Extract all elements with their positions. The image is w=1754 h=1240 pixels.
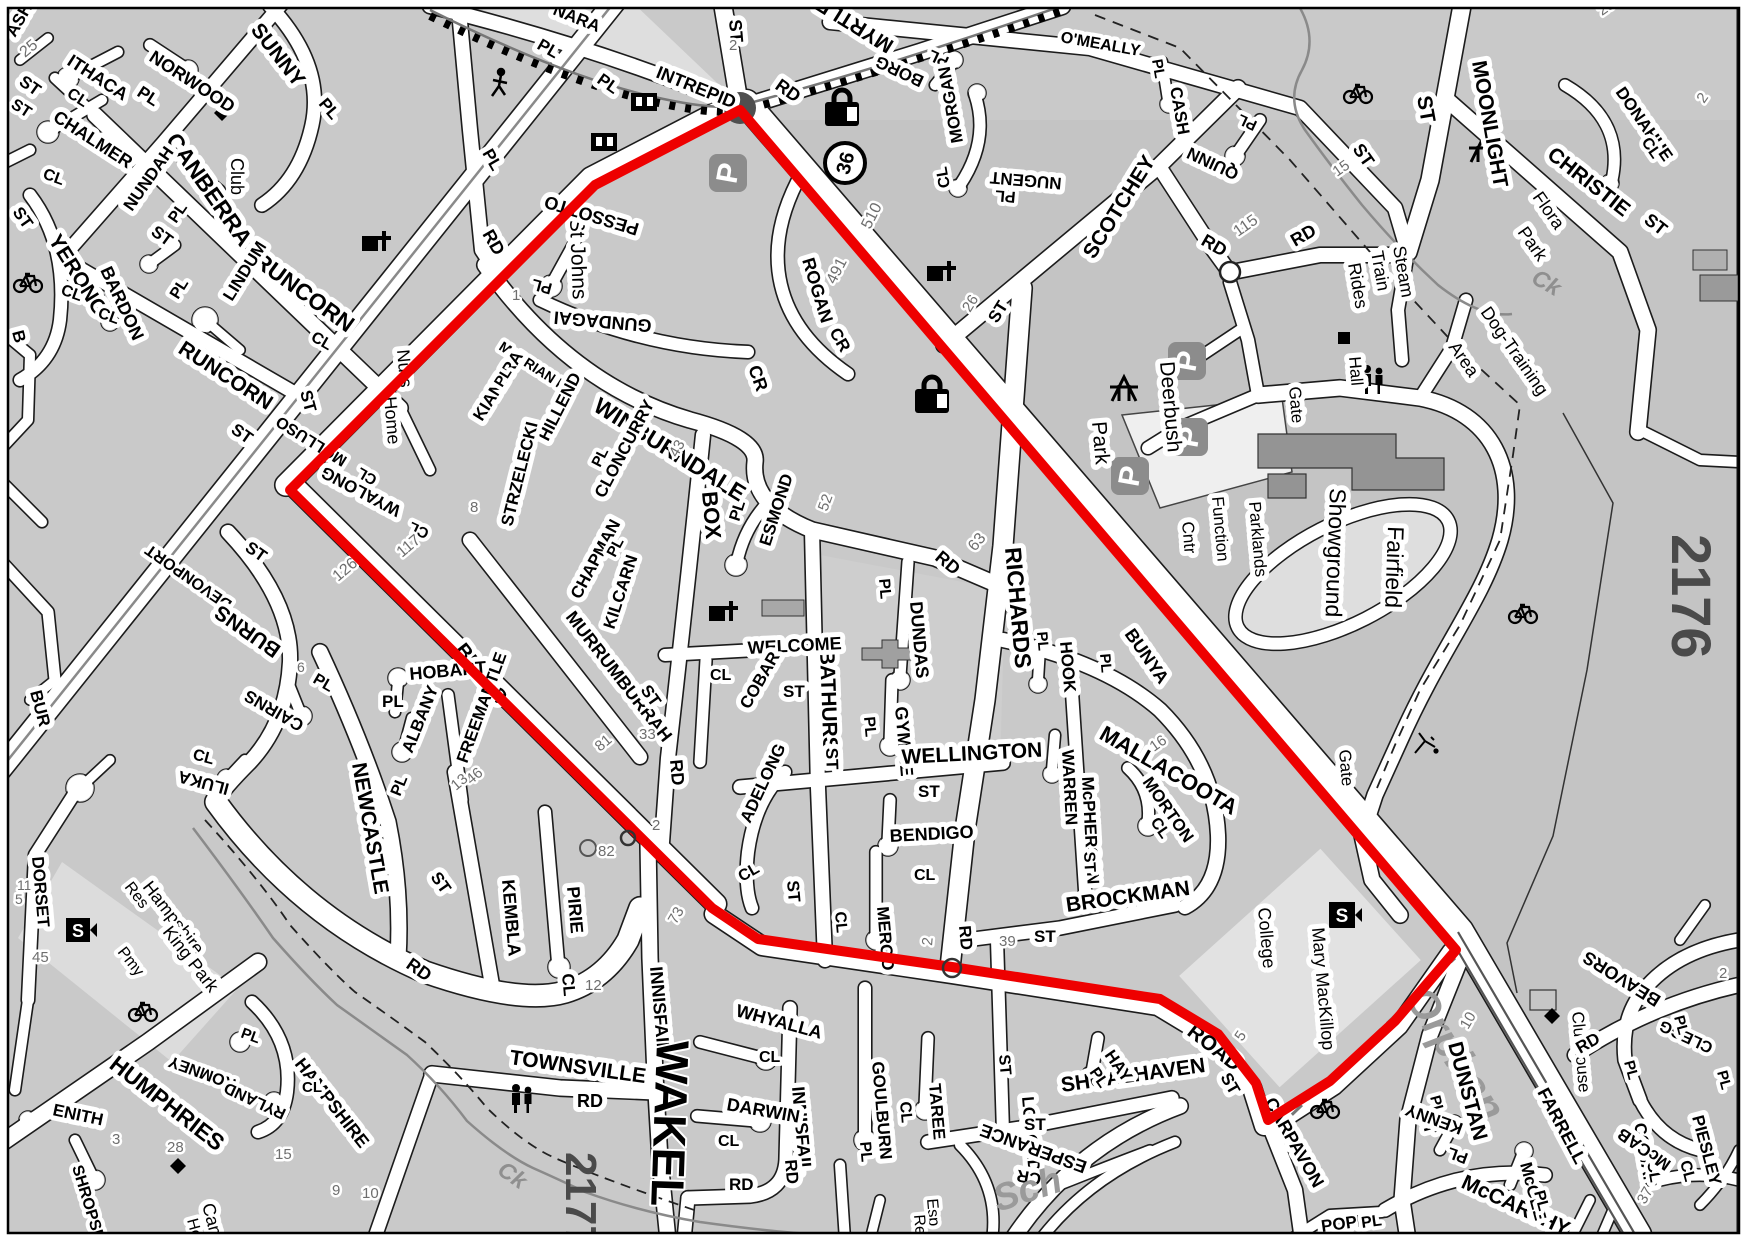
svg-text:CL: CL (302, 1079, 322, 1096)
svg-text:S: S (1336, 906, 1349, 927)
svg-text:3: 3 (112, 1131, 120, 1148)
svg-text:CL: CL (759, 1049, 781, 1066)
svg-text:RD: RD (781, 1159, 802, 1185)
svg-text:2176: 2176 (1660, 534, 1723, 659)
svg-text:ST: ST (1080, 851, 1098, 873)
svg-text:Showground: Showground (1320, 488, 1350, 618)
svg-text:CL: CL (558, 973, 579, 997)
svg-text:Fairfield: Fairfield (1380, 526, 1409, 609)
svg-text:ST: ST (1034, 927, 1056, 946)
svg-text:ST: ST (995, 1054, 1014, 1076)
svg-text:2: 2 (729, 37, 737, 54)
svg-text:PL: PL (1148, 58, 1168, 80)
svg-text:2: 2 (1719, 965, 1727, 982)
svg-text:2: 2 (919, 937, 937, 947)
svg-text:RD: RD (666, 759, 688, 787)
svg-text:2177: 2177 (556, 1152, 605, 1240)
svg-text:PL: PL (994, 186, 1016, 205)
svg-text:PIRIE: PIRIE (563, 886, 587, 935)
svg-text:CL: CL (718, 1133, 740, 1150)
svg-text:5: 5 (15, 891, 23, 907)
svg-text:Cntr: Cntr (1178, 521, 1200, 555)
svg-text:ST: ST (1024, 1115, 1046, 1134)
svg-text:BOX: BOX (697, 490, 726, 540)
svg-text:Park: Park (1087, 420, 1114, 466)
svg-text:WAKEL: WAKEL (641, 1040, 699, 1208)
svg-text:RD: RD (955, 925, 976, 951)
svg-text:33: 33 (639, 726, 656, 743)
svg-text:1: 1 (512, 287, 520, 304)
svg-text:9: 9 (332, 1182, 340, 1199)
svg-text:Gate: Gate (1335, 749, 1357, 787)
svg-text:2: 2 (652, 817, 660, 834)
svg-text:PL: PL (1033, 631, 1052, 652)
svg-text:39: 39 (999, 933, 1016, 950)
svg-text:PL: PL (856, 1141, 875, 1163)
svg-text:ST: ST (822, 747, 842, 770)
svg-text:10: 10 (362, 1185, 379, 1202)
svg-text:12: 12 (585, 977, 602, 994)
svg-text:Gate: Gate (1285, 386, 1307, 424)
svg-text:Club: Club (227, 158, 247, 195)
svg-text:CL: CL (914, 867, 936, 884)
svg-text:8: 8 (470, 499, 478, 516)
svg-text:PL: PL (1096, 653, 1115, 674)
svg-text:ST: ST (783, 682, 805, 701)
svg-text:ST: ST (918, 782, 940, 801)
svg-text:CL: CL (710, 667, 732, 684)
svg-text:RD: RD (577, 1091, 603, 1111)
svg-text:WARREN: WARREN (1058, 749, 1081, 825)
svg-text:CL: CL (896, 1101, 915, 1124)
svg-text:ST: ST (783, 880, 804, 904)
svg-text:15: 15 (275, 1146, 292, 1163)
svg-text:PL: PL (1360, 1212, 1383, 1232)
svg-text:PL: PL (860, 716, 879, 738)
svg-text:Hall: Hall (1345, 356, 1366, 387)
svg-text:S: S (72, 921, 84, 941)
svg-text:CL: CL (831, 911, 850, 934)
svg-text:PL: PL (875, 578, 894, 600)
svg-text:45: 45 (32, 949, 49, 966)
svg-text:28: 28 (167, 1139, 184, 1156)
svg-text:RD: RD (729, 1175, 754, 1194)
svg-text:ST: ST (1412, 94, 1439, 125)
svg-text:6: 6 (297, 659, 305, 675)
svg-text:PL: PL (382, 692, 404, 711)
svg-text:82: 82 (598, 843, 615, 860)
svg-text:St Johns: St Johns (565, 217, 591, 299)
